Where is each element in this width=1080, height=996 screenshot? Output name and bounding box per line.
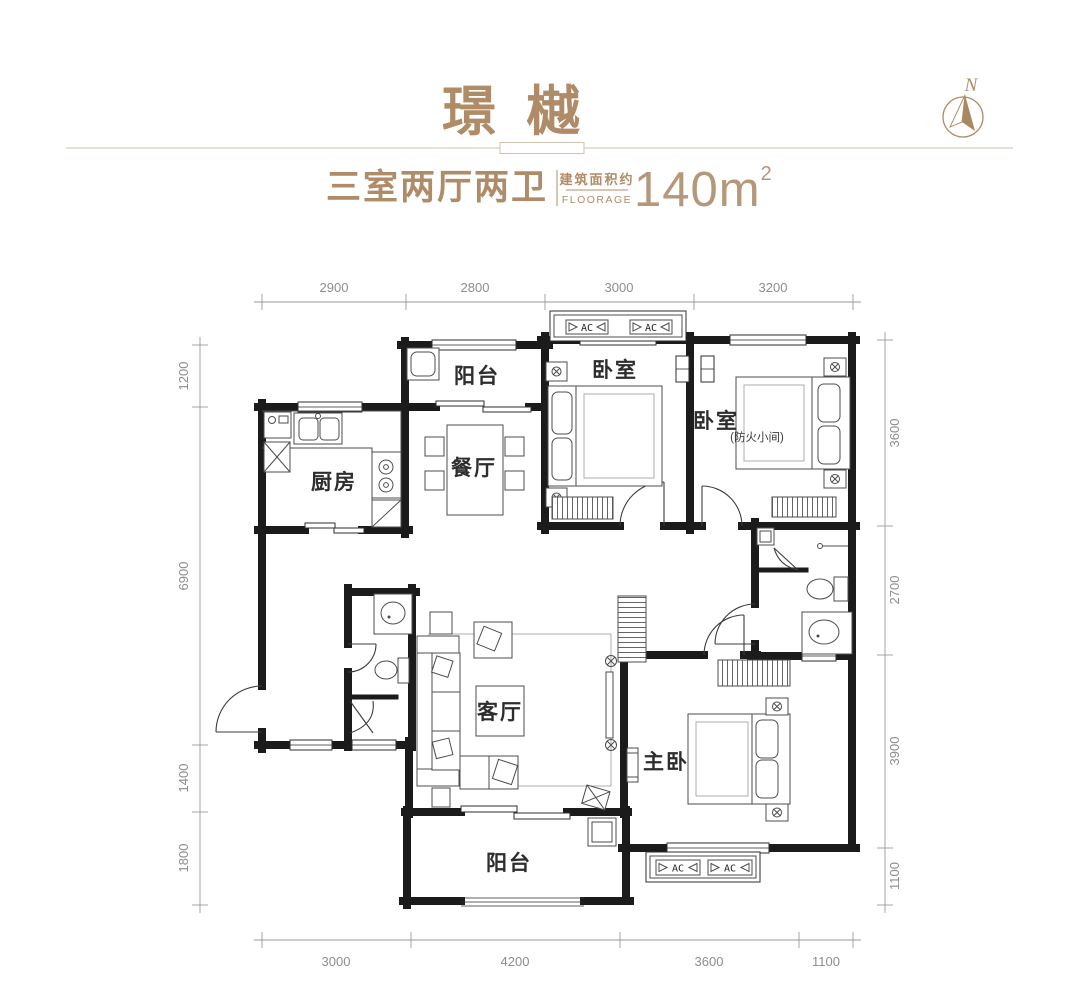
bathroom2-sink-icon: [374, 594, 412, 634]
stove-icon: [372, 452, 401, 498]
entry-door: [216, 686, 262, 732]
sofa: [417, 636, 460, 786]
room-label-bedroom2: 卧室: [693, 409, 739, 433]
hallway-closet: [618, 596, 646, 662]
bedroom1-bed: [548, 386, 662, 486]
side-table: [432, 788, 450, 807]
room-label-kitchen: 厨房: [311, 470, 357, 494]
master-closet: [718, 660, 790, 686]
bedroom1-door: [620, 482, 664, 526]
window: [730, 335, 806, 345]
dim-label: 1400: [176, 764, 191, 793]
dim-label: 3000: [322, 954, 351, 969]
master-dresser: [627, 748, 638, 782]
balcony-cabinet-icon: [588, 818, 616, 846]
flue-shaft-icon: [264, 442, 290, 472]
room-label-bedroom1: 卧室: [592, 358, 638, 382]
ac-label: AC: [724, 864, 736, 875]
bench-armchair: [460, 756, 518, 789]
kitchen-appliance: [264, 412, 291, 438]
divider-center-ornament: [500, 143, 584, 154]
bedroom2-bed: [736, 377, 850, 469]
nightstand-icon: [766, 698, 788, 715]
nightstand-icon: [824, 470, 846, 488]
dimension-top: 2900 2800 3000 3200: [254, 280, 861, 310]
dim-label: 3900: [887, 737, 902, 766]
ac-label: AC: [672, 864, 684, 875]
dim-label: 2800: [461, 280, 490, 295]
floorplan-page: 璟樾 三室两厅两卫 建筑面积约 FLOORAGE 140m2 N: [0, 0, 1080, 996]
room-label-balcony-bottom: 阳台: [486, 851, 532, 875]
bedroom1-dresser: [552, 497, 613, 519]
shower-fixture-icon: [757, 528, 774, 545]
room-label-dining: 餐厅: [451, 456, 497, 480]
bathroom1-sink-icon: [802, 612, 852, 654]
area-superscript: 2: [761, 163, 773, 185]
bathroom1-door: [715, 604, 755, 644]
dim-label: 3000: [605, 280, 634, 295]
sliding-door: [305, 523, 364, 533]
shower-door-bathroom1: [774, 548, 798, 570]
ac-platform-top: AC AC: [550, 311, 686, 341]
column-box: [676, 356, 689, 382]
dim-label: 1800: [176, 844, 191, 873]
bathroom2-door: [348, 644, 376, 672]
dim-label: 3600: [695, 954, 724, 969]
bedroom2-dresser: [772, 497, 836, 517]
room-label-living: 客厅: [477, 700, 523, 724]
floor-mark-icon: [582, 785, 610, 810]
toilet-icon: [807, 577, 848, 601]
kitchen-corner-cabinet: [372, 500, 401, 527]
bedroom2-door: [702, 486, 742, 526]
dim-label: 1200: [176, 362, 191, 391]
nightstand-icon: [766, 804, 788, 821]
dim-label: 3600: [887, 419, 902, 448]
ac-label: AC: [645, 323, 657, 334]
room-label-master: 主卧: [643, 751, 689, 774]
room-label-balcony-top: 阳台: [454, 364, 500, 388]
toilet-icon: [375, 658, 409, 683]
side-table: [430, 612, 452, 634]
balcony-rail: [461, 898, 584, 906]
nightstand-icon: [824, 358, 846, 376]
window: [290, 740, 332, 750]
dim-label: 3200: [759, 280, 788, 295]
window: [352, 740, 396, 750]
layout-type-label: 三室两厅两卫: [326, 167, 548, 207]
area-unit: m: [719, 163, 761, 217]
dim-label: 1100: [887, 862, 902, 890]
dimension-bottom: 3000 4200 3600 1100: [254, 932, 861, 969]
area-value: 140m2: [634, 163, 773, 217]
header: 璟樾 三室两厅两卫 建筑面积约 FLOORAGE 140m2: [66, 82, 1013, 217]
page-title: 璟樾: [442, 82, 610, 142]
dim-label: 2700: [887, 576, 902, 605]
column-box: [701, 356, 714, 382]
master-bed: [688, 714, 790, 804]
room-note-fire-room: (防火小间): [730, 430, 784, 444]
dim-label: 1100: [812, 954, 840, 969]
kitchen-sink-icon: [294, 413, 342, 444]
compass-north-label: N: [964, 75, 979, 96]
dim-label: 2900: [320, 280, 349, 295]
sliding-door: [436, 401, 531, 412]
nightstand-icon: [546, 362, 567, 381]
compass-icon: N: [943, 75, 983, 137]
dimension-right: 3600 2700 3900 1100: [877, 332, 902, 913]
washing-machine-icon: [407, 348, 439, 380]
dimension-left: 1200 6900 1400 1800: [176, 337, 208, 913]
area-label-en: FLOORAGE: [562, 194, 632, 206]
master-door: [704, 615, 744, 655]
ac-platform-bottom: AC AC: [646, 852, 760, 882]
floorplan-image: 璟樾 三室两厅两卫 建筑面积约 FLOORAGE 140m2 N: [0, 0, 1080, 996]
window: [432, 340, 516, 350]
sliding-door: [461, 806, 570, 819]
armchair: [474, 622, 512, 658]
area-number: 140: [634, 163, 719, 217]
ac-label: AC: [581, 323, 593, 334]
dim-label: 4200: [501, 954, 530, 969]
area-label-cn: 建筑面积约: [559, 172, 634, 187]
dim-label: 6900: [176, 562, 191, 591]
towel-bar-icon: [818, 544, 849, 549]
shower-door-bathroom2: [350, 701, 373, 733]
